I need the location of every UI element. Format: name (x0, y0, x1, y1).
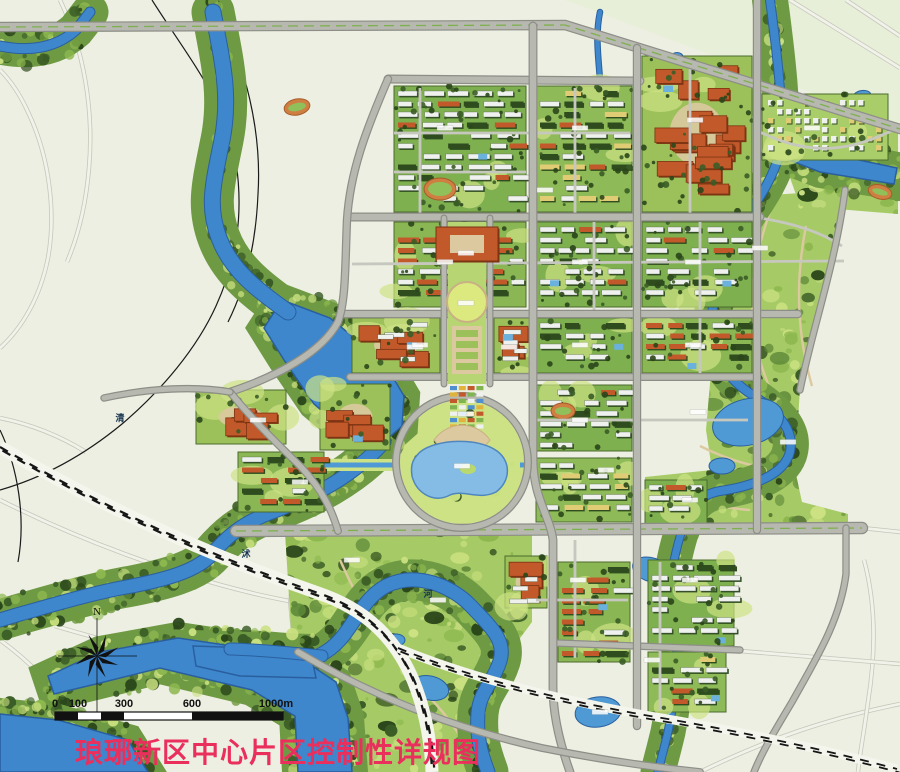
map-label-chip (598, 468, 614, 473)
map-label-chip (572, 418, 588, 423)
major-road (388, 79, 640, 81)
map-label-chip (752, 246, 768, 251)
map-label-chip (685, 260, 701, 265)
map-label-chip (437, 126, 453, 131)
map-label-chip (454, 464, 470, 469)
plan-drawing: 清沭河 (0, 0, 900, 772)
map-label-chip (437, 260, 453, 265)
map-label-chip (344, 558, 360, 563)
map-label-chip (501, 345, 517, 350)
city-block (394, 83, 532, 213)
map-label-chip (780, 440, 796, 445)
pond (709, 458, 735, 474)
river-name-character: 清 (115, 412, 124, 423)
map-label-chip (572, 343, 588, 348)
map-label-chip (592, 710, 608, 715)
urban-plan-map: 清沭河 0 100 300 600 1000m N 琅琊新区中心片区控制性详规图 (0, 0, 900, 772)
map-label-chip (682, 498, 698, 503)
map-label-chip (804, 126, 820, 131)
city-block (536, 318, 641, 373)
river-name-character: 沭 (241, 548, 250, 559)
map-label-chip (537, 188, 553, 193)
map-label-chip (690, 410, 706, 415)
map-label-chip (250, 418, 266, 423)
map-label-chip (682, 578, 698, 583)
map-label-chip (292, 480, 308, 485)
map-label-chip (458, 301, 474, 306)
city-block (557, 562, 638, 665)
map-label-chip (412, 343, 428, 348)
central-lake (411, 441, 507, 498)
map-label-chip (458, 412, 474, 417)
river-name-character: 河 (423, 588, 432, 599)
map-label-chip (458, 251, 474, 256)
map-label-chip (685, 343, 701, 348)
map-label-chip (687, 118, 703, 123)
city-block (536, 457, 640, 523)
map-label-chip (570, 578, 586, 583)
map-label-chip (572, 260, 588, 265)
map-label-chip (572, 126, 588, 131)
city-block (536, 380, 636, 451)
map-label-chip (644, 658, 660, 663)
